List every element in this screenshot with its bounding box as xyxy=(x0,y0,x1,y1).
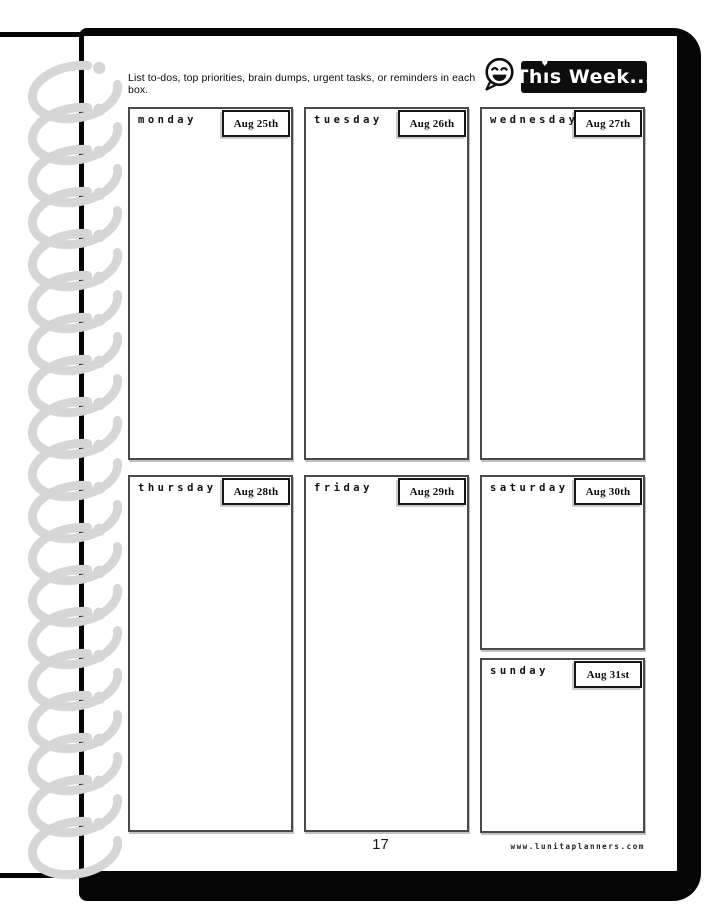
instruction-text: List to-dos, top priorities, brain dumps… xyxy=(128,72,488,96)
day-name-label: friday xyxy=(314,482,373,494)
smiley-speech-bubble-icon xyxy=(481,56,517,94)
day-date-badge: Aug 25th xyxy=(222,110,290,137)
back-cover-top-edge xyxy=(0,32,90,37)
day-date-badge: Aug 30th xyxy=(574,478,642,505)
day-box-tuesday: tuesday Aug 26th xyxy=(304,107,469,460)
day-date-badge: Aug 31st xyxy=(574,661,642,688)
day-box-thursday: thursday Aug 28th xyxy=(128,475,293,832)
planner-product-image: List to-dos, top priorities, brain dumps… xyxy=(0,0,720,920)
day-name-label: tuesday xyxy=(314,114,383,126)
day-box-saturday: saturday Aug 30th xyxy=(480,475,645,650)
website-url: www.lunitaplanners.com xyxy=(510,842,645,851)
day-date-badge: Aug 28th xyxy=(222,478,290,505)
badge-text-pre: Th xyxy=(515,66,543,88)
day-name-label: wednesday xyxy=(490,114,578,126)
day-date-badge: Aug 27th xyxy=(574,110,642,137)
day-box-friday: friday Aug 29th xyxy=(304,475,469,832)
day-date-badge: Aug 29th xyxy=(398,478,466,505)
back-cover-bottom-edge xyxy=(0,873,90,878)
planner-page: List to-dos, top priorities, brain dumps… xyxy=(84,36,677,871)
this-week-badge: Thı♥s Week... xyxy=(521,61,647,93)
day-name-label: thursday xyxy=(138,482,217,494)
day-box-monday: monday Aug 25th xyxy=(128,107,293,460)
heart-icon: ♥ xyxy=(541,59,548,68)
badge-dotless-i: ı♥ xyxy=(543,66,550,88)
day-box-sunday: sunday Aug 31st xyxy=(480,658,645,833)
day-name-label: saturday xyxy=(490,482,569,494)
badge-text-post: s Week... xyxy=(550,66,653,88)
day-box-wednesday: wednesday Aug 27th xyxy=(480,107,645,460)
day-date-badge: Aug 26th xyxy=(398,110,466,137)
day-name-label: monday xyxy=(138,114,197,126)
day-name-label: sunday xyxy=(490,665,549,677)
